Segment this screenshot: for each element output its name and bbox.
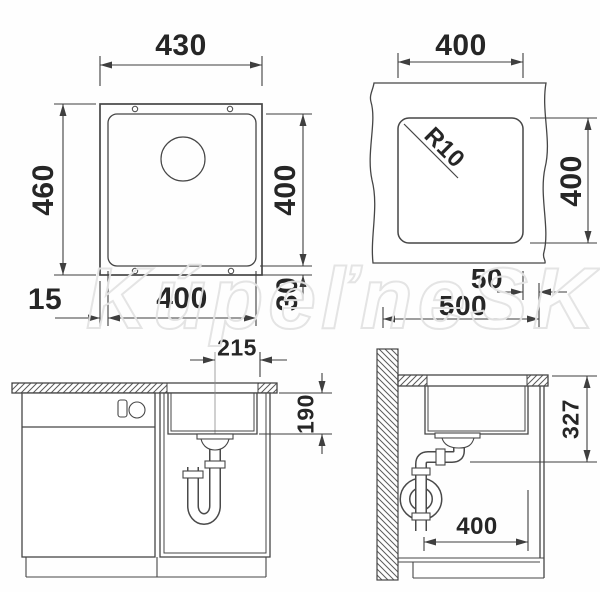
dim-label-bowl-inner-depth: 190 [295, 394, 318, 434]
appliance-button-icon [118, 400, 127, 417]
mounting-hole-icon [132, 106, 137, 111]
countertop-hatch [258, 383, 277, 393]
drain-flange [197, 434, 233, 439]
drain-dome [442, 438, 474, 448]
mounting-hole-icon [132, 268, 137, 273]
bowl-section-outer [425, 386, 528, 434]
cabinet-bottom [398, 558, 544, 578]
dim-label-edge-distance: 50 [471, 265, 503, 293]
side-view [377, 349, 597, 580]
dim-label-overall-depth: 460 [29, 164, 59, 216]
mounting-hole-icon [228, 268, 233, 273]
dim-label-install-height: 327 [560, 399, 583, 439]
mounting-hole-icon [227, 106, 232, 111]
extension-line [54, 104, 96, 275]
plinth [26, 557, 266, 577]
countertop-hatch [398, 375, 427, 386]
dim-label-bowl-width: 400 [156, 284, 208, 314]
sink-outer-edge [100, 104, 262, 275]
spec-drawing-page: 430 460 400 15 400 30 400 R10 400 50 500… [0, 0, 600, 592]
front-view [12, 352, 332, 577]
dim-label-cabinet-width: 500 [439, 292, 487, 320]
dim-label-cutout-depth: 400 [557, 155, 587, 207]
dim-label-bowl-depth: 400 [271, 164, 301, 216]
appliance-knob-icon [129, 402, 145, 418]
bowl-section-inner [428, 386, 525, 431]
countertop-hatch [12, 383, 167, 393]
pipe-nut [205, 461, 225, 468]
dim-label-overall-width: 430 [155, 31, 207, 61]
dim-label-cabinet-depth: 400 [456, 515, 498, 539]
pipe-nut [412, 468, 430, 475]
pipe-nut [436, 449, 445, 465]
drain-icon [161, 137, 205, 181]
dim-label-rim-side: 15 [28, 285, 62, 315]
wall-section [377, 349, 398, 580]
cabinet-side-panel [540, 386, 544, 578]
drain-flange [435, 433, 480, 438]
dim-label-rim-bottom: 30 [273, 277, 303, 311]
countertop-hatch [527, 375, 548, 386]
pipe-nut [412, 513, 430, 520]
pipe-nut [183, 471, 203, 478]
dim-label-drain-offset: 215 [217, 337, 257, 360]
dim-label-cutout-width: 400 [435, 31, 487, 61]
